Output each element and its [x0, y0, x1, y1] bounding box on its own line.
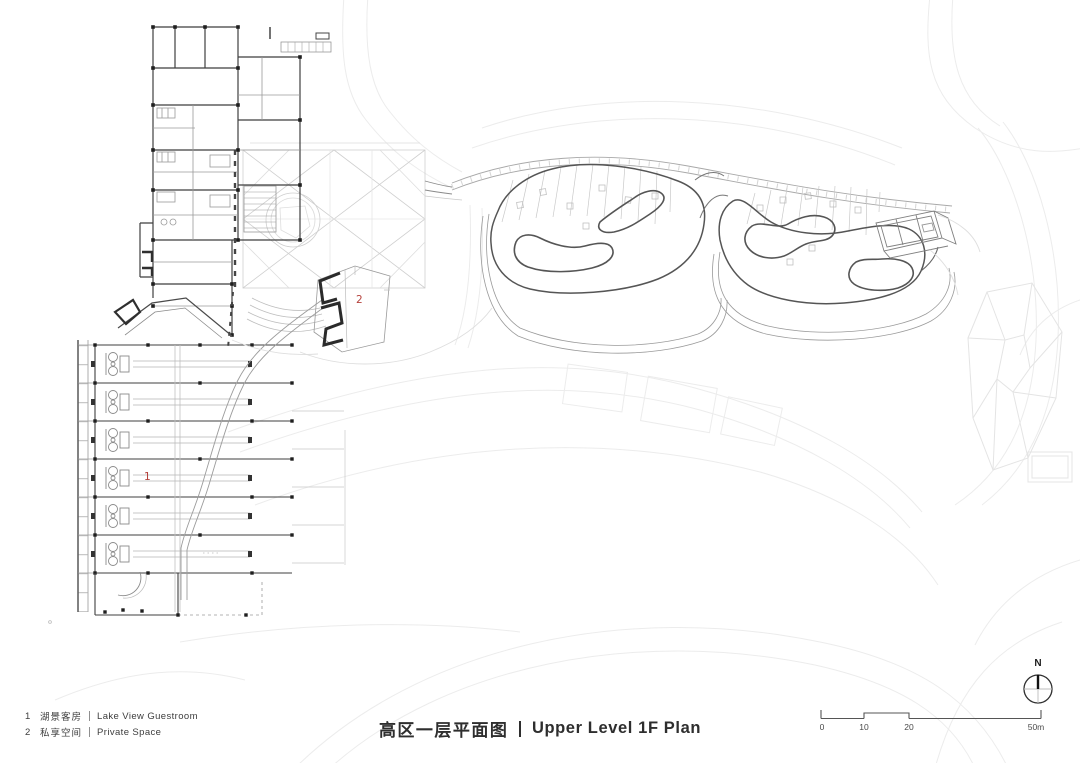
terrace-east-boundary	[719, 200, 925, 304]
scale-tick-50m: 50m	[1028, 722, 1045, 732]
plaza-paving	[243, 143, 425, 288]
guestroom-wing	[78, 340, 345, 617]
upper-building-columns	[151, 25, 302, 337]
title-en: Upper Level 1F Plan	[532, 719, 701, 738]
north-label: N	[1020, 658, 1056, 669]
north-arrow: N	[1020, 658, 1056, 708]
rooftop-details	[270, 27, 331, 52]
upper-building-heavy-walls	[142, 252, 152, 276]
terrace-east-paving	[747, 186, 880, 265]
title-zh: 高区一层平面图	[379, 716, 509, 741]
plan-marker-1: 1	[144, 472, 151, 483]
pavilion	[876, 211, 980, 295]
scale-bar: 0 10 20 50m	[820, 708, 1044, 738]
upper-walkway-band	[425, 157, 952, 213]
floor-plan-canvas	[0, 0, 1080, 763]
terrace-west	[481, 164, 728, 353]
wing-deck-lines	[292, 411, 345, 565]
plan-marker-2: 2	[356, 295, 363, 306]
terrace-west-skirt	[481, 214, 727, 353]
ghost-context-lines	[55, 0, 1080, 763]
terrace-east-planter-b	[849, 259, 913, 291]
scale-tick-20: 20	[904, 722, 913, 732]
scale-bar-graphic	[820, 708, 1044, 721]
faceted-roof-outline	[968, 283, 1072, 482]
terrace-east	[712, 186, 955, 340]
scale-tick-10: 10	[859, 722, 868, 732]
wing-end-suite	[95, 572, 262, 617]
terrace-east-planter-a	[745, 216, 835, 258]
context-marks	[49, 553, 220, 623]
terrace-east-skirt	[712, 252, 955, 340]
upper-building-light-walls	[153, 57, 300, 306]
terrace-west-planter-a	[514, 235, 613, 272]
terrace-west-paving	[502, 164, 671, 229]
title-divider	[519, 721, 521, 737]
upper-building-walls	[140, 27, 300, 335]
scale-tick-0: 0	[820, 722, 825, 732]
terrace-west-boundary	[491, 165, 705, 294]
link-roof-lines	[115, 298, 232, 338]
